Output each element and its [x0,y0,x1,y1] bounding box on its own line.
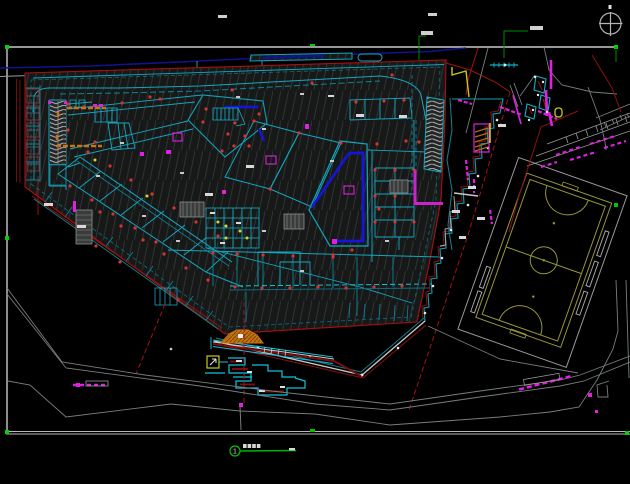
svg-text:1: 1 [233,449,237,456]
